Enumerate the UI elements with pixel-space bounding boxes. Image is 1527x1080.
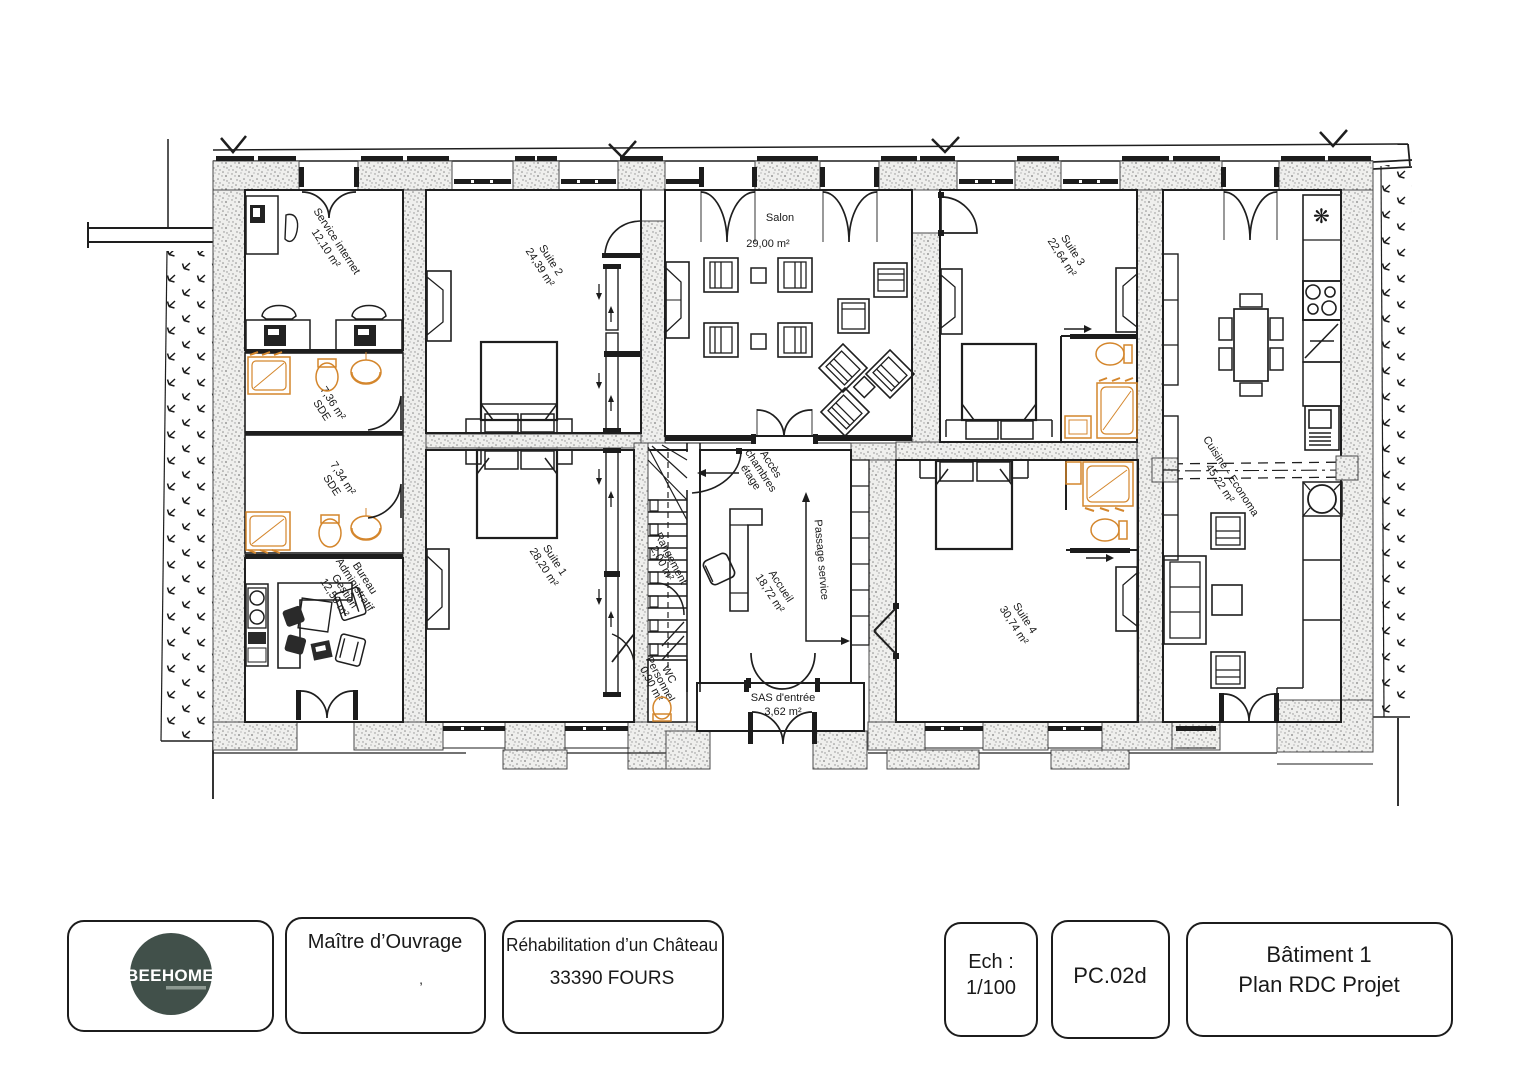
svg-text:Salon: Salon	[766, 212, 794, 224]
svg-text:BEEHOME: BEEHOME	[126, 966, 214, 985]
svg-text:SAS d'entrée: SAS d'entrée	[751, 692, 815, 704]
svg-text:Ech :: Ech :	[968, 951, 1014, 973]
svg-text:Maître d’Ouvrage: Maître d’Ouvrage	[308, 931, 463, 953]
svg-text:33390 FOURS: 33390 FOURS	[550, 968, 675, 989]
svg-text:’: ’	[419, 979, 422, 995]
svg-text:Réhabilitation d’un Château: Réhabilitation d’un Château	[506, 935, 718, 955]
svg-text:1/100: 1/100	[966, 977, 1016, 999]
svg-text:❋: ❋	[1313, 206, 1330, 228]
svg-text:PC.02d: PC.02d	[1073, 963, 1146, 988]
svg-text:29,00 m²: 29,00 m²	[746, 238, 790, 250]
svg-text:Bâtiment 1: Bâtiment 1	[1266, 942, 1371, 967]
svg-text:Plan RDC Projet: Plan RDC Projet	[1238, 972, 1399, 997]
